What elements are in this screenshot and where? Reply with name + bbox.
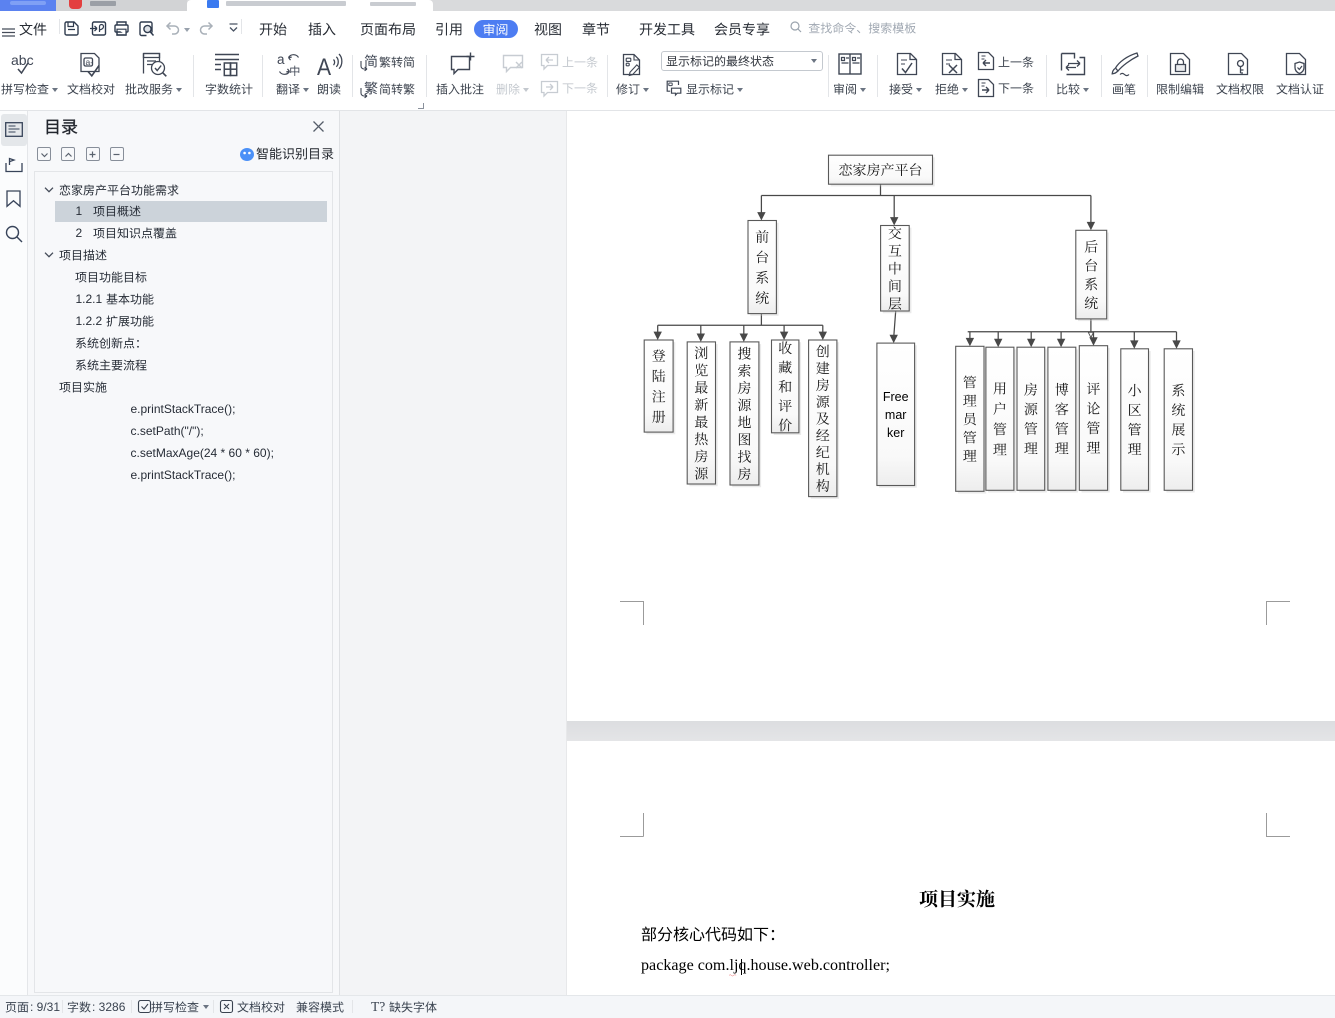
svg-text:abc: abc	[11, 52, 34, 68]
svg-text:ker: ker	[887, 426, 904, 440]
svg-text:a-: a-	[86, 57, 94, 67]
svg-text:Free: Free	[883, 390, 909, 404]
svg-text:a: a	[277, 52, 285, 67]
svg-text:A: A	[317, 54, 332, 81]
svg-text:mar: mar	[885, 408, 907, 422]
